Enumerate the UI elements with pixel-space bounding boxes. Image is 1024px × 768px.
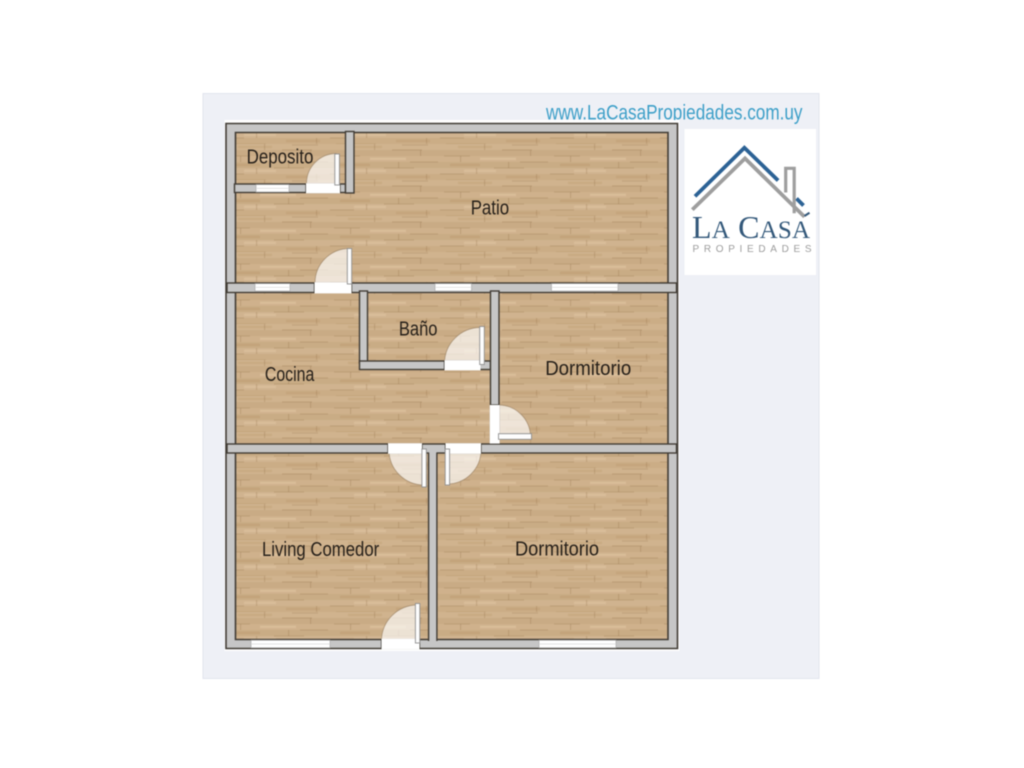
- svg-text:Dormitorio: Dormitorio: [545, 357, 631, 380]
- svg-text:Living Comedor: Living Comedor: [262, 538, 379, 561]
- svg-text:Patio: Patio: [471, 196, 509, 219]
- svg-text:PROPIEDADES: PROPIEDADES: [693, 244, 812, 255]
- svg-text:Baño: Baño: [399, 318, 438, 341]
- svg-text:Cocina: Cocina: [265, 363, 315, 386]
- svg-text:Dormitorio: Dormitorio: [515, 538, 599, 561]
- svg-text:Deposito: Deposito: [247, 146, 314, 169]
